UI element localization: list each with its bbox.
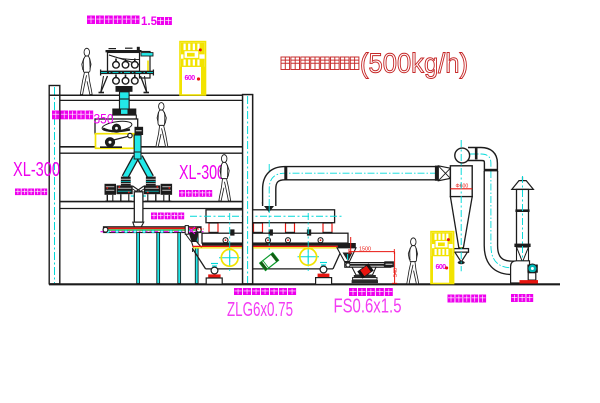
svg-text:1500: 1500: [359, 247, 371, 253]
svg-text:350: 350: [94, 111, 114, 127]
svg-text:ZLG6x0.75: ZLG6x0.75: [227, 299, 293, 321]
svg-text:XL-300: XL-300: [179, 162, 225, 184]
svg-text:1.5: 1.5: [141, 16, 158, 28]
svg-text:XL-300: XL-300: [13, 159, 60, 181]
svg-text:(500kg/h): (500kg/h): [360, 48, 468, 79]
svg-text:600: 600: [436, 264, 447, 271]
svg-text:600: 600: [185, 75, 196, 82]
svg-text:540: 540: [393, 268, 399, 277]
svg-text:FS0.6x1.5: FS0.6x1.5: [334, 296, 402, 318]
